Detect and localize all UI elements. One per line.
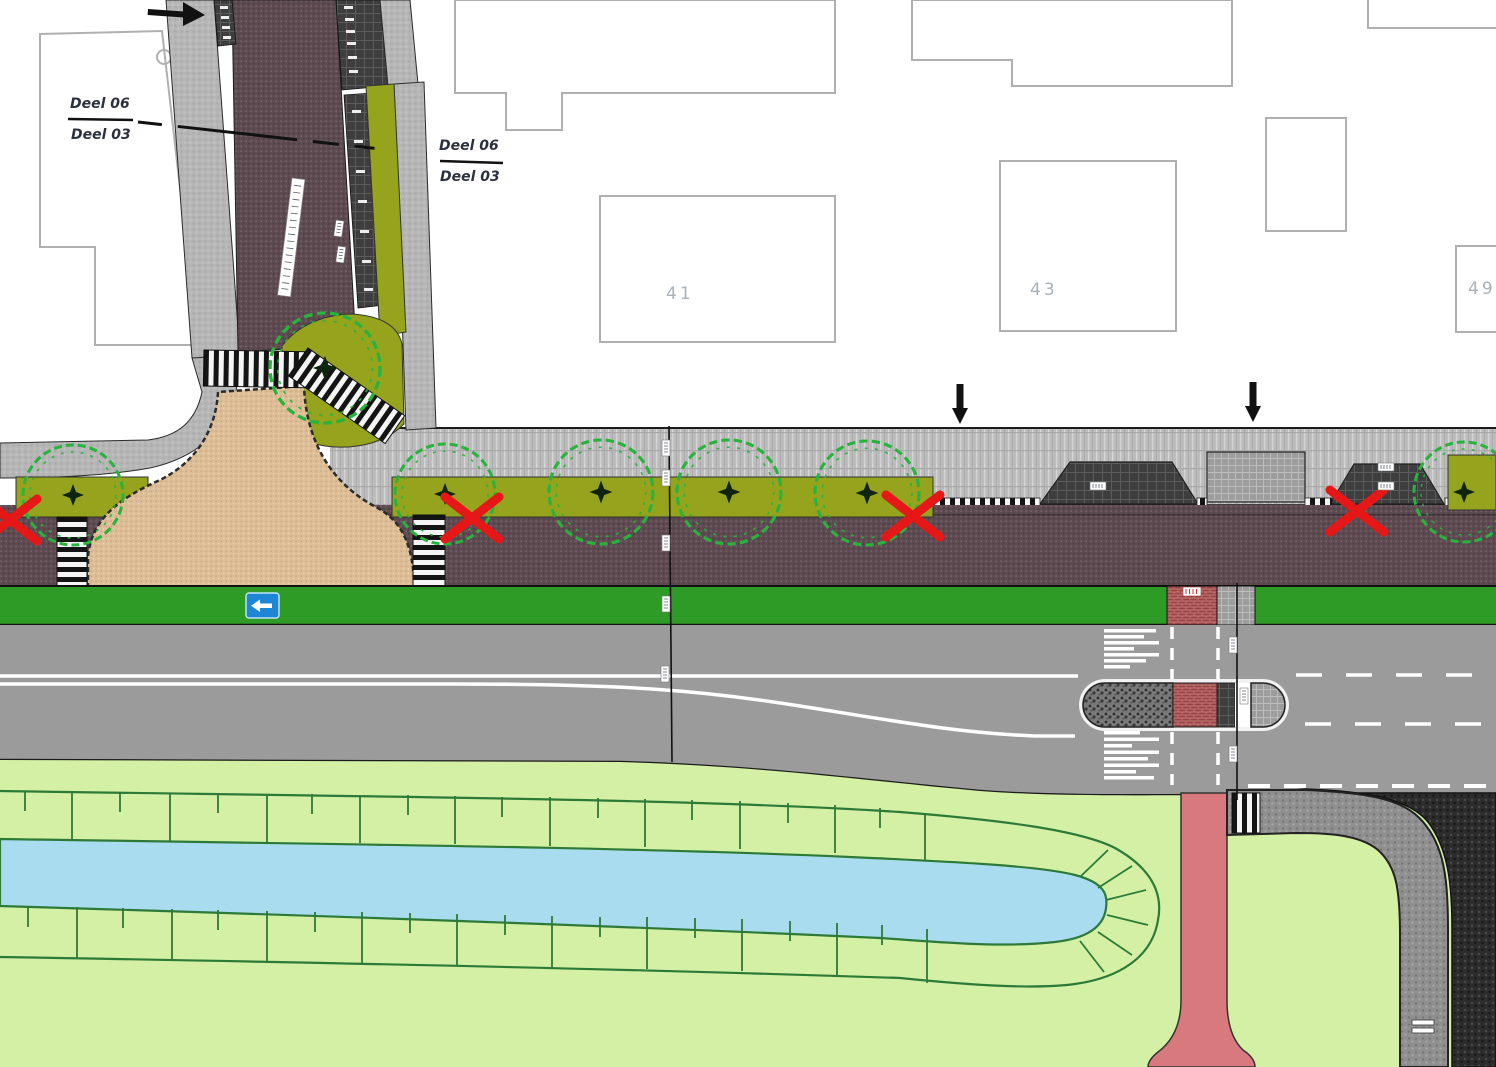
down-arrow-icon — [1245, 382, 1261, 422]
dimension-tag — [662, 535, 670, 551]
dimension-tag — [1229, 637, 1237, 653]
verge — [0, 586, 1496, 625]
dimension-tag — [661, 666, 669, 682]
island-nose — [1083, 683, 1173, 727]
building-outline — [1266, 118, 1346, 231]
building-outline — [1000, 161, 1176, 331]
dimension-tag-red — [1183, 587, 1201, 596]
building-outline — [600, 196, 835, 342]
ramp-marking — [203, 350, 306, 388]
building-outline — [912, 0, 1232, 86]
planting-strip — [1448, 455, 1496, 510]
parking-bay-strip — [336, 0, 388, 90]
dimension-tag — [662, 470, 670, 486]
traffic-island — [1079, 679, 1289, 731]
crossing-blocks — [1217, 586, 1255, 625]
section-label-bottom: Deel 03 — [71, 127, 131, 143]
curb-dash-strip — [1197, 498, 1207, 506]
dimension-tag — [1240, 688, 1248, 704]
section-label-top: Deel 06 — [70, 96, 130, 112]
dimension-tag — [662, 596, 670, 612]
building-outline — [455, 0, 835, 130]
down-arrow-icon — [952, 384, 968, 424]
section-label-top: Deel 06 — [439, 138, 499, 154]
dimension-tag — [1229, 746, 1237, 762]
dimension-tag — [662, 440, 670, 456]
section-label: Deel 06 Deel 03 — [68, 96, 133, 143]
curb-dash-strip — [1305, 498, 1332, 506]
ramp-marking — [57, 517, 87, 588]
building-number: 41 — [666, 284, 694, 304]
one-way-sign — [246, 593, 279, 618]
dimension-tag — [1378, 463, 1394, 471]
section-label: Deel 06 Deel 03 — [439, 138, 503, 185]
island-crossing-brick — [1173, 683, 1217, 727]
section-label-bottom: Deel 03 — [440, 169, 500, 185]
building-outline — [1368, 0, 1496, 28]
building-number: 43 — [1030, 280, 1058, 300]
building-number: 49 — [1468, 279, 1496, 299]
site-plan-canvas: 41 43 49 — [0, 0, 1496, 1067]
driveway-bay — [1207, 452, 1305, 502]
ramp-marking — [413, 515, 445, 588]
site-plan-drawing: 41 43 49 — [0, 0, 1496, 1067]
dimension-tag — [1090, 482, 1106, 490]
curb-dash-strip — [932, 498, 1040, 506]
side-street-roadway — [232, 0, 356, 352]
island-dark-blocks — [1217, 683, 1235, 727]
dimension-tag — [1378, 482, 1394, 490]
